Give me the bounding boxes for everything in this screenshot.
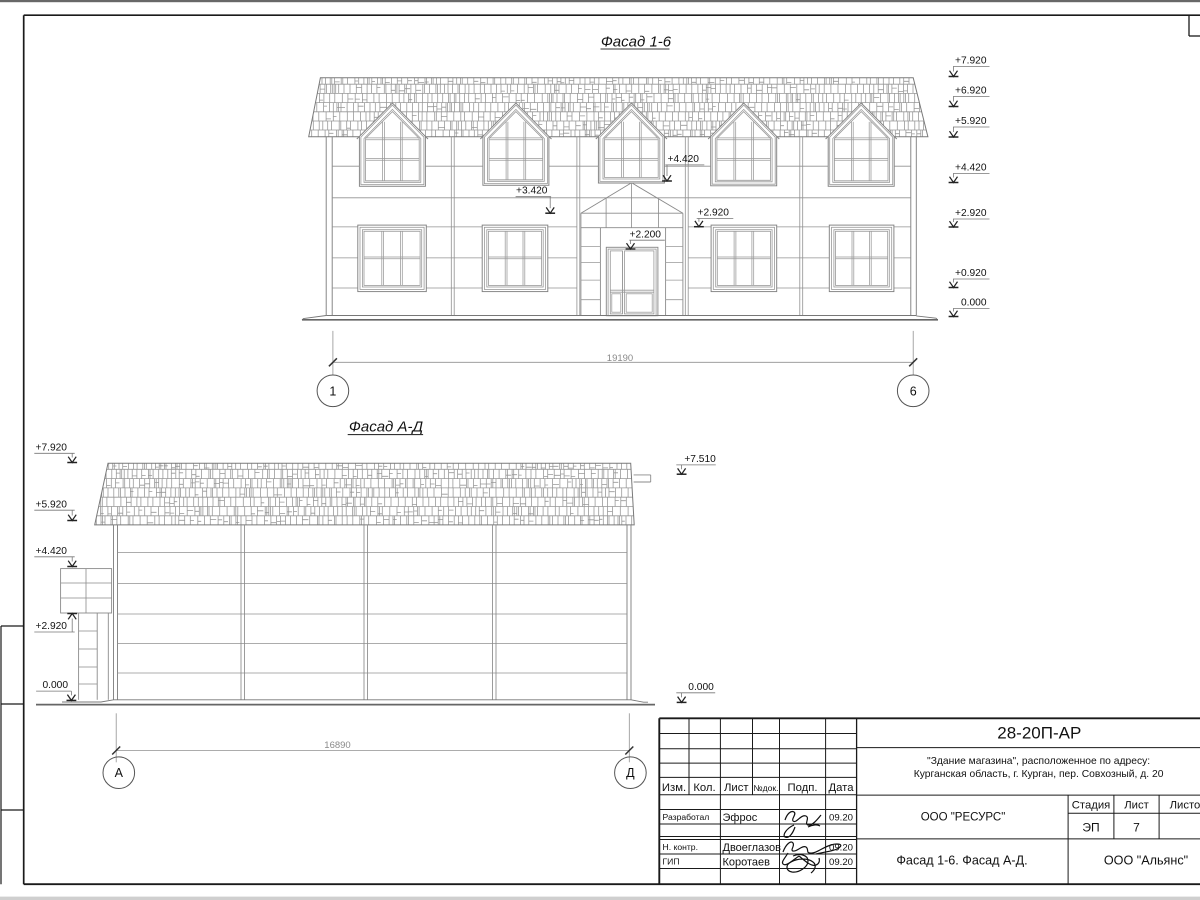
svg-text:+2.920: +2.920 xyxy=(36,621,68,632)
svg-text:0.000: 0.000 xyxy=(43,680,69,691)
svg-text:+7.510: +7.510 xyxy=(684,454,716,465)
svg-text:Двоеглазов: Двоеглазов xyxy=(723,842,782,854)
svg-text:Фасад А-Д: Фасад А-Д xyxy=(349,419,424,436)
svg-text:16890: 16890 xyxy=(324,740,350,751)
svg-text:ООО "Альянс": ООО "Альянс" xyxy=(1104,854,1188,868)
svg-text:Эфрос: Эфрос xyxy=(723,812,758,824)
svg-text:+4.420: +4.420 xyxy=(668,154,700,165)
svg-text:09.20: 09.20 xyxy=(829,813,853,824)
svg-text:Н. контр.: Н. контр. xyxy=(663,842,698,852)
svg-text:09.20: 09.20 xyxy=(829,857,853,868)
svg-text:Дата: Дата xyxy=(828,782,854,794)
svg-text:ЭП: ЭП xyxy=(1082,821,1099,835)
svg-text:Разработал: Разработал xyxy=(663,812,710,822)
svg-text:№док.: №док. xyxy=(753,783,778,793)
svg-text:Фасад 1-6. Фасад А-Д.: Фасад 1-6. Фасад А-Д. xyxy=(896,854,1027,868)
svg-text:Стадия: Стадия xyxy=(1072,800,1111,812)
svg-text:+7.920: +7.920 xyxy=(36,442,68,453)
svg-text:0.000: 0.000 xyxy=(961,298,987,309)
svg-text:+5.920: +5.920 xyxy=(955,116,987,127)
svg-text:Изм.: Изм. xyxy=(662,782,686,794)
svg-text:+5.920: +5.920 xyxy=(36,499,68,510)
svg-text:Фасад 1-6: Фасад 1-6 xyxy=(601,34,672,51)
svg-text:28-20П-АР: 28-20П-АР xyxy=(997,724,1081,743)
svg-text:+2.920: +2.920 xyxy=(955,208,987,219)
svg-text:"Здание магазина", расположенн: "Здание магазина", расположенное по адре… xyxy=(927,756,1150,767)
svg-text:+6.920: +6.920 xyxy=(955,86,987,97)
svg-text:Д: Д xyxy=(626,766,635,780)
svg-text:0.000: 0.000 xyxy=(688,682,714,693)
svg-text:19190: 19190 xyxy=(607,353,633,364)
svg-text:+4.420: +4.420 xyxy=(955,163,987,174)
svg-text:Подп.: Подп. xyxy=(787,782,817,794)
svg-text:+3.420: +3.420 xyxy=(516,186,548,197)
svg-text:6: 6 xyxy=(910,384,917,398)
svg-text:ГИП: ГИП xyxy=(663,857,680,867)
svg-text:Коротаев: Коротаев xyxy=(723,857,771,869)
svg-text:Курганская область, г. Курган,: Курганская область, г. Курган, пер. Совх… xyxy=(914,768,1164,780)
svg-text:А: А xyxy=(115,766,124,780)
svg-text:ООО "РЕСУРС": ООО "РЕСУРС" xyxy=(921,812,1006,824)
svg-text:+0.920: +0.920 xyxy=(955,268,987,279)
svg-text:+4.420: +4.420 xyxy=(36,546,68,557)
svg-text:+7.920: +7.920 xyxy=(955,56,987,67)
svg-text:Лист: Лист xyxy=(724,782,749,794)
svg-text:+2.920: +2.920 xyxy=(698,208,730,219)
svg-text:7: 7 xyxy=(1133,821,1140,835)
svg-text:1: 1 xyxy=(329,384,336,398)
svg-text:Лист: Лист xyxy=(1124,800,1149,812)
svg-text:Кол.: Кол. xyxy=(693,782,715,794)
svg-text:+2.200: +2.200 xyxy=(630,229,662,240)
svg-text:Листов: Листов xyxy=(1170,800,1200,812)
